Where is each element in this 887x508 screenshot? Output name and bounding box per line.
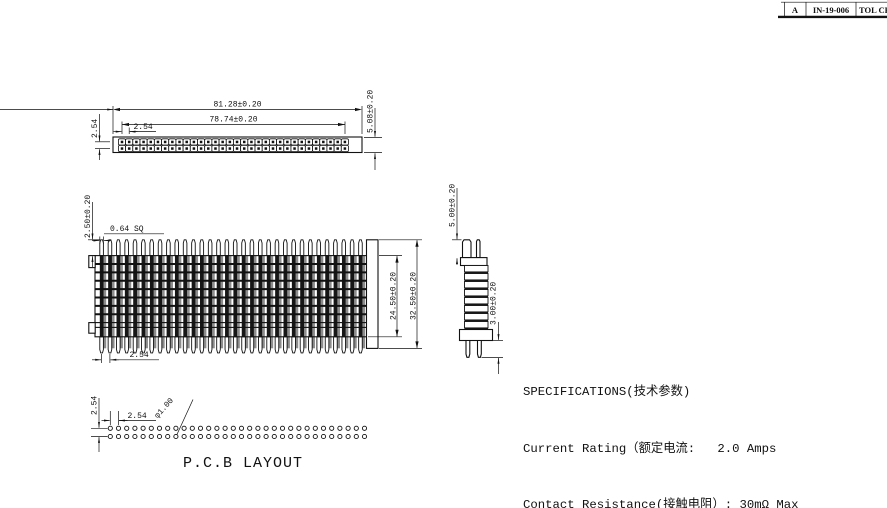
pcb-hole (133, 426, 137, 430)
rear-pin-column (112, 256, 115, 337)
pcb-hole (346, 426, 350, 430)
stack-plate (465, 314, 489, 320)
rear-pin-column (204, 256, 207, 337)
pin-contact (286, 147, 289, 150)
pcb-hole (305, 426, 309, 430)
pcb-hole (289, 426, 293, 430)
rear-bottom-pin (354, 337, 357, 349)
dim-overall-height: 32.50±0.20 (410, 272, 419, 320)
pcb-hole (248, 426, 252, 430)
pcb-hole (338, 434, 342, 438)
bottom-pin (150, 337, 154, 353)
bottom-pin (334, 337, 338, 353)
pcb-hole (190, 426, 194, 430)
dim-side-top-pin: 5.00±0.20 (449, 184, 458, 227)
bottom-pin (250, 337, 254, 353)
rear-bottom-pin (170, 337, 173, 349)
dim-pin-square: 0.64 SQ (110, 225, 144, 234)
front-pin-column (142, 256, 146, 337)
pin-contact (344, 147, 347, 150)
top-pin (284, 240, 288, 256)
rear-pin-column (170, 256, 173, 337)
top-pin (158, 240, 162, 256)
rear-bottom-pin (229, 337, 232, 349)
bottom-pin (317, 337, 321, 353)
pcb-hole (108, 434, 112, 438)
side-view-top-pin-front (463, 240, 472, 258)
pcb-hole (313, 434, 317, 438)
top-pin (142, 240, 146, 256)
pin-contact (257, 141, 260, 144)
side-view-bottom-pin-rear (478, 341, 482, 358)
pin-contact (200, 147, 203, 150)
pin-contact (301, 147, 304, 150)
rear-bottom-pin (262, 337, 265, 349)
side-view: 5.00±0.20 3.00±0.20 (449, 184, 504, 374)
pcb-hole (182, 426, 186, 430)
front-pin-column (300, 256, 304, 337)
front-pin-column (325, 256, 329, 337)
pin-contact (207, 141, 210, 144)
tolerance-cell: TOL CHE (859, 5, 887, 15)
pcb-dimension-lines (91, 398, 193, 452)
side-view-top-plate (461, 258, 488, 266)
rear-bottom-pin (162, 337, 165, 349)
rear-bottom-pin (312, 337, 315, 349)
top-pin (300, 240, 304, 256)
pin-contact (243, 147, 246, 150)
pcb-hole (182, 434, 186, 438)
rear-pin-column (346, 256, 349, 337)
pin-contact (135, 147, 138, 150)
pin-contact (301, 141, 304, 144)
side-view-bottom-pin-front (466, 341, 470, 358)
pcb-hole (256, 426, 260, 430)
rear-bottom-pin (145, 337, 148, 349)
pcb-layout-label: P.C.B LAYOUT (183, 455, 303, 472)
rear-bottom-pin (112, 337, 115, 349)
rear-pin-column (287, 256, 290, 337)
pcb-hole (108, 426, 112, 430)
pin-contact (142, 147, 145, 150)
top-pin (350, 240, 354, 256)
top-pin (175, 240, 179, 256)
pcb-hole (330, 426, 334, 430)
pin-contact (229, 141, 232, 144)
pcb-hole (362, 434, 366, 438)
specifications-title: SPECIFICATIONS(技术参数) (523, 383, 873, 402)
rear-bottom-pin (212, 337, 215, 349)
rear-pin-column (279, 256, 282, 337)
bottom-pin (208, 337, 212, 353)
pin-contact (265, 147, 268, 150)
rear-bottom-pin (321, 337, 324, 349)
pcb-hole (198, 426, 202, 430)
bottom-pin (309, 337, 313, 353)
rear-pin-column (296, 256, 299, 337)
rear-pin-column (221, 256, 224, 337)
pin-contact (336, 147, 339, 150)
top-pin (342, 240, 346, 256)
bottom-pin (350, 337, 354, 353)
front-pin-column (258, 256, 262, 337)
top-pin (217, 240, 221, 256)
top-pin (309, 240, 313, 256)
pcb-hole (272, 426, 276, 430)
rear-pin-column (145, 256, 148, 337)
pcb-hole (157, 434, 161, 438)
pin-contact (193, 147, 196, 150)
pin-contact (150, 141, 153, 144)
pin-contact (272, 147, 275, 150)
dim-body-height: 24.50±0.20 (390, 272, 399, 320)
pcb-hole (289, 434, 293, 438)
pcb-hole (125, 426, 129, 430)
bottom-pin (183, 337, 187, 353)
dim-overall-length: 81.28±0.20 (213, 101, 261, 110)
bottom-pin (100, 337, 104, 353)
bottom-pin (275, 337, 279, 353)
pin-contact (236, 147, 239, 150)
pin-contact (121, 147, 124, 150)
pin-contact (178, 147, 181, 150)
front-pin-column (158, 256, 162, 337)
rear-pin-column (120, 256, 123, 337)
dim-pitch: 2.54 (134, 123, 153, 132)
pin-contact (214, 141, 217, 144)
pcb-hole (280, 426, 284, 430)
pin-contact (142, 141, 145, 144)
dim-hole-pitch: 2.54 (128, 412, 147, 421)
bottom-pin (175, 337, 179, 353)
pcb-hole (116, 434, 120, 438)
bottom-pin (359, 337, 363, 353)
rear-pin-column (195, 256, 198, 337)
pcb-hole (133, 434, 137, 438)
pcb-hole (297, 434, 301, 438)
dim-hole-row-pitch: 2.54 (91, 396, 100, 415)
top-pin (200, 240, 204, 256)
pin-contact (128, 147, 131, 150)
rear-bottom-pin (279, 337, 282, 349)
pcb-hole (248, 434, 252, 438)
rear-bottom-pin (346, 337, 349, 349)
pin-contact (293, 141, 296, 144)
pin-contact (250, 147, 253, 150)
rear-pin-column (329, 256, 332, 337)
drawing-number-cell: IN-19-006 (813, 5, 849, 15)
dim-body-width: 5.08±0.20 (367, 90, 376, 133)
pin-contact (250, 141, 253, 144)
pcb-hole (256, 434, 260, 438)
stack-plate (465, 282, 489, 288)
bottom-pin (167, 337, 171, 353)
rear-bottom-pin (204, 337, 207, 349)
top-pin (267, 240, 271, 256)
pin-contact (193, 141, 196, 144)
front-pin-column (250, 256, 254, 337)
rear-pin-column (354, 256, 357, 337)
dim-row-pitch: 2.54 (91, 119, 100, 138)
bottom-pin (233, 337, 237, 353)
pcb-hole (354, 426, 358, 430)
top-pin (317, 240, 321, 256)
pin-contact (265, 141, 268, 144)
bottom-pin (242, 337, 246, 353)
stack-plate (465, 290, 489, 296)
bottom-pin (325, 337, 329, 353)
pcb-layout: 2.54 2.54 φ1.00 P.C.B LAYOUT (91, 396, 367, 472)
pin-contact (308, 141, 311, 144)
rear-pin-column (162, 256, 165, 337)
front-pin-column (242, 256, 246, 337)
top-view: 81.28±0.20 78.74±0.20 2.54 2.54 5.08±0.2… (0, 90, 382, 170)
rear-pin-column (137, 256, 140, 337)
dim-side-bottom-pin: 3.00±0.20 (490, 282, 499, 325)
front-pin-column (275, 256, 279, 337)
pcb-hole (174, 434, 178, 438)
dim-bottom-pitch: 2.54 (130, 351, 149, 360)
pcb-hole (149, 434, 153, 438)
pcb-hole (166, 434, 170, 438)
pcb-hole (313, 426, 317, 430)
pin-contact (221, 141, 224, 144)
pin-contact (171, 147, 174, 150)
top-pin (167, 240, 171, 256)
pcb-hole (239, 426, 243, 430)
pin-contact (200, 141, 203, 144)
top-pin (242, 240, 246, 256)
top-pin (250, 240, 254, 256)
rear-bottom-pin (104, 337, 107, 349)
pcb-hole (321, 426, 325, 430)
rear-bottom-pin (221, 337, 224, 349)
pcb-hole (207, 426, 211, 430)
rear-bottom-pin (120, 337, 123, 349)
front-view: 2.50±0.20 0.64 SQ 24.50±0.20 32.50±0.20 … (84, 195, 422, 363)
stack-plate (465, 298, 489, 304)
front-view-body-bands (95, 264, 367, 314)
stack-plate (465, 322, 489, 328)
top-pin (108, 240, 112, 256)
top-pin (133, 240, 137, 256)
pcb-hole (215, 434, 219, 438)
pcb-hole (116, 426, 120, 430)
pin-contact (178, 141, 181, 144)
front-pin-column (108, 256, 112, 337)
top-pin (325, 240, 329, 256)
pin-contact (243, 141, 246, 144)
front-pin-column (100, 256, 104, 337)
bottom-pin (125, 337, 129, 353)
front-pin-column (125, 256, 129, 337)
pcb-holes (108, 426, 366, 438)
title-block-fragment: A IN-19-006 TOL CHE (778, 2, 887, 17)
front-view-left-tab-top (89, 256, 95, 268)
pcb-hole (338, 426, 342, 430)
front-pin-column (133, 256, 137, 337)
front-view-pins (100, 240, 365, 353)
bottom-pin (342, 337, 346, 353)
rear-pin-column (362, 256, 365, 337)
pin-contact (293, 147, 296, 150)
pin-contact (329, 141, 332, 144)
pin-contact (279, 141, 282, 144)
pcb-hole (207, 434, 211, 438)
rear-bottom-pin (187, 337, 190, 349)
rear-bottom-pin (179, 337, 182, 349)
stack-plate (465, 274, 489, 280)
pin-contact (121, 141, 124, 144)
rear-pin-column (129, 256, 132, 337)
dim-pin-span: 78.74±0.20 (209, 116, 257, 125)
front-pin-column (208, 256, 212, 337)
pin-contact (236, 141, 239, 144)
pin-contact (286, 141, 289, 144)
pin-contact (171, 141, 174, 144)
top-pin (208, 240, 212, 256)
rear-pin-column (104, 256, 107, 337)
pcb-hole (157, 426, 161, 430)
top-pin (292, 240, 296, 256)
bottom-pin (200, 337, 204, 353)
pcb-hole (305, 434, 309, 438)
pcb-hole (141, 434, 145, 438)
front-pin-column (267, 256, 271, 337)
front-pin-column (117, 256, 121, 337)
top-pin (117, 240, 121, 256)
front-pin-column (334, 256, 338, 337)
pcb-hole (149, 426, 153, 430)
pcb-hole (166, 426, 170, 430)
pin-contact (185, 147, 188, 150)
top-pin (359, 240, 363, 256)
front-pin-column (183, 256, 187, 337)
rear-pin-column (229, 256, 232, 337)
rear-bottom-pin (246, 337, 249, 349)
pin-contact (322, 141, 325, 144)
front-pin-column (192, 256, 196, 337)
pin-contact (329, 147, 332, 150)
pin-contact (315, 141, 318, 144)
front-pin-column (217, 256, 221, 337)
dim-hole-diameter: φ1.00 (153, 396, 176, 420)
front-pin-column (284, 256, 288, 337)
front-pin-column (350, 256, 354, 337)
rear-bottom-pin (129, 337, 132, 349)
front-pin-column (233, 256, 237, 337)
front-pin-column (317, 256, 321, 337)
spec-contact-resistance: Contact Resistance(接触电阻）: 30mΩ Max (523, 496, 873, 508)
pin-contact (164, 141, 167, 144)
bottom-pin (117, 337, 121, 353)
bottom-pin (108, 337, 112, 353)
pcb-hole (215, 426, 219, 430)
pin-contact (336, 141, 339, 144)
front-pin-column (200, 256, 204, 337)
bottom-pin (217, 337, 221, 353)
pin-contact (344, 141, 347, 144)
pin-contact (157, 147, 160, 150)
rear-pin-column (321, 256, 324, 337)
front-pin-column (225, 256, 229, 337)
front-pin-column (175, 256, 179, 337)
pcb-hole (297, 426, 301, 430)
top-pin (334, 240, 338, 256)
pin-contact (214, 147, 217, 150)
rear-bottom-pin (195, 337, 198, 349)
bottom-pin (284, 337, 288, 353)
rear-bottom-pin (237, 337, 240, 349)
rear-pin-column (254, 256, 257, 337)
rear-pin-column (179, 256, 182, 337)
rear-pin-column (304, 256, 307, 337)
rear-pin-column (237, 256, 240, 337)
front-pin-column (150, 256, 154, 337)
pcb-hole (198, 434, 202, 438)
pin-contact (308, 147, 311, 150)
front-pin-column (292, 256, 296, 337)
top-pin (275, 240, 279, 256)
top-pin (100, 240, 104, 256)
stack-plate (465, 266, 489, 272)
pin-contact (221, 147, 224, 150)
bottom-pin (192, 337, 196, 353)
rear-bottom-pin (337, 337, 340, 349)
pin-contact (135, 141, 138, 144)
front-pin-column (342, 256, 346, 337)
pcb-hole (141, 426, 145, 430)
top-pin (150, 240, 154, 256)
pcb-hole (330, 434, 334, 438)
rear-bottom-pin (287, 337, 290, 349)
pcb-hole (272, 434, 276, 438)
engineering-drawing-page: A IN-19-006 TOL CHE (0, 0, 887, 508)
dim-top-pin-height: 2.50±0.20 (84, 195, 93, 238)
pin-contact (272, 141, 275, 144)
pin-contact (257, 147, 260, 150)
rear-bottom-pin (362, 337, 365, 349)
pcb-hole (321, 434, 325, 438)
rear-pin-column (246, 256, 249, 337)
pcb-hole (223, 434, 227, 438)
rear-bottom-pin (254, 337, 257, 349)
pcb-hole (354, 434, 358, 438)
pcb-hole (190, 434, 194, 438)
pcb-hole (231, 426, 235, 430)
bottom-pin (267, 337, 271, 353)
front-pin-column (167, 256, 171, 337)
rear-bottom-pin (296, 337, 299, 349)
top-pin (125, 240, 129, 256)
spec-current-rating: Current Rating（额定电流: 2.0 Amps (523, 440, 873, 459)
rear-bottom-pin (271, 337, 274, 349)
front-view-end-wall (367, 240, 379, 349)
rear-pin-column (212, 256, 215, 337)
pin-contact (229, 147, 232, 150)
front-pin-column (309, 256, 313, 337)
pin-contact (207, 147, 210, 150)
side-view-bottom-spacer (460, 330, 493, 341)
specifications-block: SPECIFICATIONS(技术参数) Current Rating（额定电流… (523, 345, 873, 508)
pcb-hole (223, 426, 227, 430)
top-pin (258, 240, 262, 256)
pin-contact (128, 141, 131, 144)
bottom-pin (300, 337, 304, 353)
rear-bottom-pin (304, 337, 307, 349)
rear-pin-column (262, 256, 265, 337)
pcb-hole (346, 434, 350, 438)
